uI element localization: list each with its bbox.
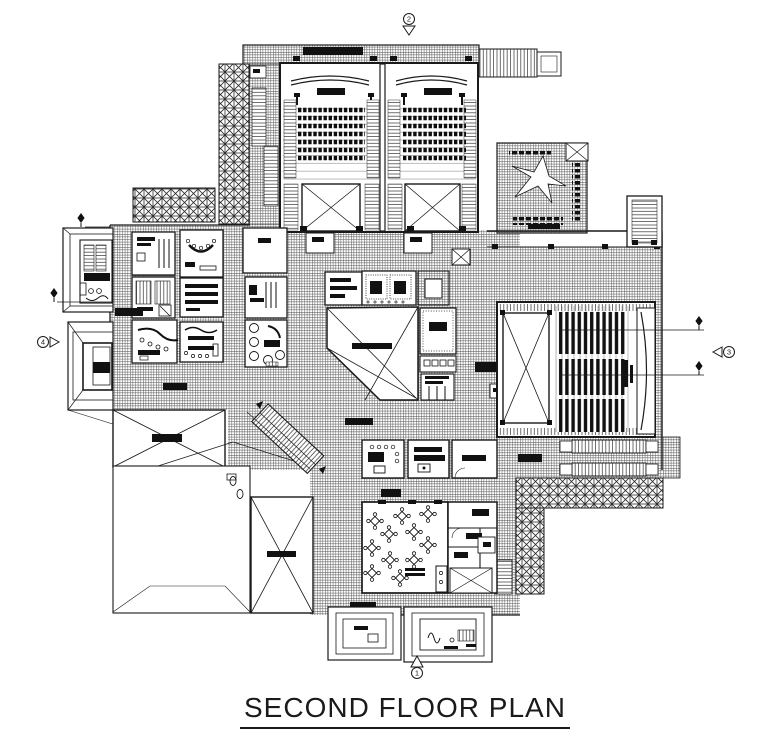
zone-label-bar	[528, 224, 560, 229]
service-counter	[436, 566, 447, 592]
seat-bank	[556, 399, 626, 432]
top-right-landing	[537, 52, 561, 76]
stage-void-xbox	[500, 310, 552, 425]
seat-bank	[556, 312, 626, 354]
corridor-label-bar	[303, 47, 363, 55]
office-room	[452, 440, 497, 478]
bubble-top-label: 2	[407, 15, 411, 24]
floor-plan-canvas: 2 1 4 3 SECOND FLOOR PLAN	[0, 0, 769, 737]
small-lift-xbox	[452, 249, 470, 265]
section-spade-icon	[50, 288, 57, 302]
shelf-room	[325, 272, 362, 305]
section-spade-icon	[77, 213, 84, 227]
stage-podium	[622, 360, 628, 387]
bottom-skylight-blocks	[328, 602, 492, 662]
tall-void-xbox	[251, 497, 313, 613]
zone-label-bar	[345, 418, 373, 425]
room-label-box	[404, 233, 432, 253]
elevator-bank	[362, 271, 416, 305]
section-bubble-down-icon	[403, 26, 415, 35]
exit-stair	[284, 184, 298, 230]
core-stair	[421, 374, 454, 400]
diamond-screen-strip	[219, 64, 249, 224]
conference-table	[429, 322, 447, 331]
bubble-left: 4	[38, 337, 60, 348]
pantry-room	[408, 440, 449, 478]
bottom-left-terrace	[113, 401, 326, 613]
office-room	[362, 440, 404, 478]
bubble-bottom-label: 1	[415, 669, 419, 678]
diamond-trellis-horizontal	[516, 478, 663, 508]
office-room	[132, 232, 175, 275]
halls-divider-wall	[380, 64, 385, 231]
shelf-room	[180, 278, 223, 317]
desk	[368, 452, 384, 462]
diamond-trellis	[133, 188, 215, 222]
void-label-bar	[152, 434, 182, 442]
section-spade-icon	[695, 361, 702, 375]
kitchen-xbox	[450, 568, 492, 593]
stage-void-xbox	[405, 184, 460, 231]
table	[462, 455, 486, 461]
void-label-bar	[267, 551, 296, 557]
bubble-top: 2	[403, 14, 415, 36]
bubble-left-label: 4	[41, 338, 45, 347]
round-tables-room	[245, 320, 287, 367]
storage-cells	[420, 356, 456, 372]
kitchen-block	[448, 502, 497, 593]
office-room	[243, 228, 287, 273]
seat-bank	[556, 359, 626, 395]
restaurant-hall	[362, 500, 448, 593]
lobby-stair-2	[264, 146, 278, 206]
stage-void-xbox	[302, 184, 360, 231]
floor-plan-drawing: 2 1 4 3	[0, 0, 769, 737]
lift-car	[394, 281, 406, 294]
plan-title-text: SECOND FLOOR PLAN	[240, 692, 570, 729]
bridge-label-bar	[475, 362, 498, 372]
skylight-block-left	[328, 602, 401, 660]
zone-label-bar	[518, 454, 542, 462]
planter	[237, 490, 243, 499]
bubble-right-label: 3	[727, 348, 731, 357]
skylight-block-right	[404, 607, 492, 662]
service-shaft	[418, 271, 449, 305]
diamond-trellis-vertical	[516, 508, 544, 594]
zone-label-bar	[115, 308, 143, 316]
meeting-room-semicircle	[180, 230, 223, 277]
section-spade-icon	[695, 316, 702, 330]
canopy-arrow-block	[497, 143, 588, 233]
zone-label-bar	[350, 602, 376, 607]
wide-void-xbox	[113, 410, 225, 467]
stage-platform	[424, 88, 452, 95]
bubble-right: 3	[713, 347, 735, 358]
room-label-box	[306, 233, 334, 253]
planter	[230, 477, 236, 486]
exit-stair	[388, 184, 402, 230]
upper-tower	[63, 228, 113, 312]
lounge-room	[132, 320, 178, 363]
office-room	[245, 277, 287, 318]
meeting-room	[420, 308, 456, 354]
lift-car	[370, 281, 382, 294]
plan-title: SECOND FLOOR PLAN	[240, 692, 504, 729]
workstation-room	[180, 322, 223, 362]
exit-stair	[462, 184, 476, 230]
section-bubble-right-icon	[50, 337, 59, 347]
lobby-stair-1	[252, 88, 266, 146]
top-right-stair	[479, 49, 537, 77]
section-bubble-left-icon	[713, 347, 722, 357]
zone-label-bar	[163, 383, 187, 390]
zone-label-bar	[381, 489, 401, 497]
exit-stair	[365, 184, 379, 230]
void-label-bar	[352, 343, 392, 349]
stage-platform	[317, 88, 345, 95]
